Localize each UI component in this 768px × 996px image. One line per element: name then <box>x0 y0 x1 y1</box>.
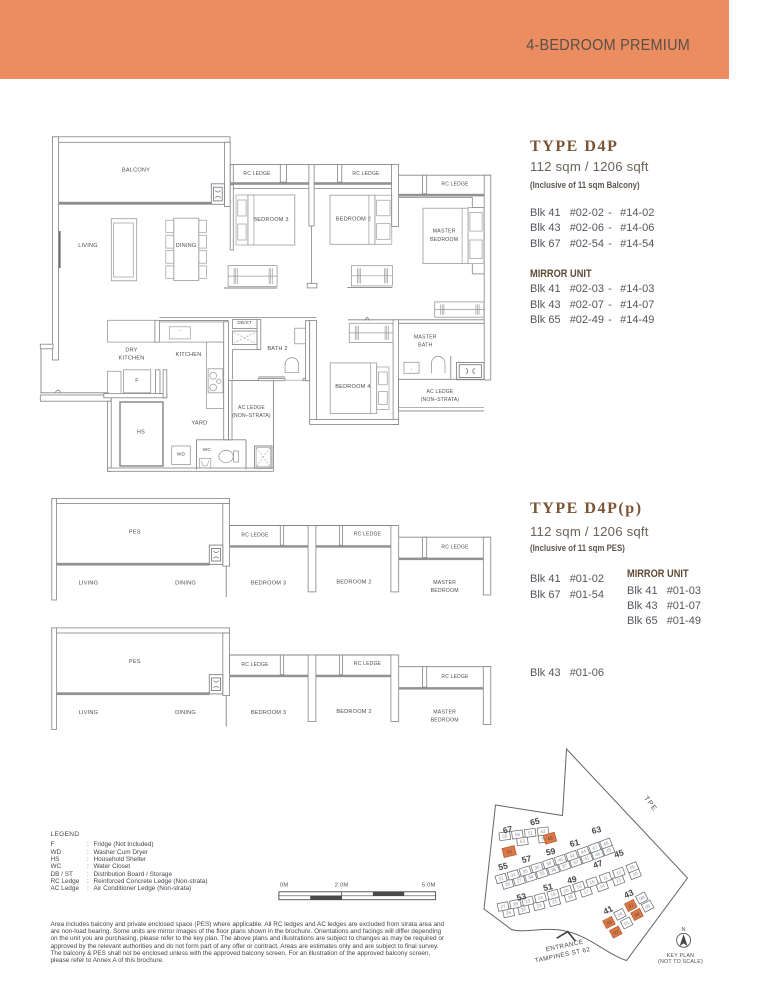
svg-text:LIVING: LIVING <box>78 243 98 249</box>
svg-text:RC LEDGE: RC LEDGE <box>441 182 469 188</box>
svg-text:KITCHEN: KITCHEN <box>176 352 202 358</box>
svg-text:TPE: TPE <box>642 795 658 813</box>
svg-text:RC LEDGE: RC LEDGE <box>441 545 469 551</box>
svg-text:DINING: DINING <box>175 710 196 716</box>
svg-text:F: F <box>135 378 139 384</box>
svg-text:BATH: BATH <box>418 343 432 349</box>
svg-text:RC LEDGE: RC LEDGE <box>241 533 269 539</box>
svg-text:LIVING: LIVING <box>79 581 99 587</box>
svg-text:65: 65 <box>529 816 541 828</box>
svg-text:(NON–STRATA): (NON–STRATA) <box>421 397 460 403</box>
svg-text:RC LEDGE: RC LEDGE <box>243 171 271 177</box>
svg-text:61: 61 <box>569 837 581 849</box>
svg-text:RC LEDGE: RC LEDGE <box>354 532 382 538</box>
svg-text:BEDROOM: BEDROOM <box>431 717 459 723</box>
svg-text:DINING: DINING <box>175 581 196 587</box>
svg-text:BEDROOM 3: BEDROOM 3 <box>253 217 288 223</box>
svg-text:DINING: DINING <box>176 243 197 249</box>
svg-text:YARD: YARD <box>191 421 207 427</box>
svg-text:63: 63 <box>591 824 603 836</box>
svg-text:PES: PES <box>129 659 141 665</box>
svg-text:BEDROOM: BEDROOM <box>431 588 459 594</box>
svg-text:45: 45 <box>613 847 626 860</box>
svg-text:WC: WC <box>203 447 212 453</box>
svg-text:AC LEDGE: AC LEDGE <box>238 405 265 411</box>
svg-text:57: 57 <box>521 853 533 865</box>
svg-text:RC LEDGE: RC LEDGE <box>352 171 380 177</box>
svg-text:MASTER: MASTER <box>433 229 456 235</box>
svg-text:BEDROOM 2: BEDROOM 2 <box>336 709 371 715</box>
svg-text:59: 59 <box>545 846 557 858</box>
svg-text:2.0M: 2.0M <box>335 883 349 889</box>
svg-text:41: 41 <box>602 903 615 916</box>
svg-text:BEDROOM: BEDROOM <box>430 237 458 243</box>
svg-text:43: 43 <box>622 887 635 900</box>
svg-text:5.0M: 5.0M <box>422 883 436 889</box>
svg-text:47: 47 <box>592 858 605 871</box>
svg-text:BATH 2: BATH 2 <box>267 346 287 352</box>
svg-text:LIVING: LIVING <box>79 710 99 716</box>
svg-text:(NON–STRATA): (NON–STRATA) <box>232 413 271 419</box>
svg-text:BEDROOM 2: BEDROOM 2 <box>336 217 371 223</box>
svg-text:PES: PES <box>129 530 141 536</box>
svg-text:BALCONY: BALCONY <box>122 168 150 174</box>
svg-text:MASTER: MASTER <box>433 580 456 586</box>
svg-text:(NOT TO SCALE): (NOT TO SCALE) <box>658 959 703 965</box>
svg-text:RC LEDGE: RC LEDGE <box>441 674 469 680</box>
svg-text:MASTER: MASTER <box>433 709 456 715</box>
svg-text:N: N <box>681 927 685 933</box>
svg-text:WD: WD <box>177 452 186 458</box>
svg-text:BEDROOM 3: BEDROOM 3 <box>251 581 286 587</box>
svg-text:0M: 0M <box>280 883 288 889</box>
svg-text:BEDROOM 4: BEDROOM 4 <box>335 384 370 390</box>
svg-text:BEDROOM 2: BEDROOM 2 <box>336 579 371 585</box>
svg-text:55: 55 <box>497 860 509 872</box>
svg-text:DRY: DRY <box>125 348 137 354</box>
svg-text:MASTER: MASTER <box>414 335 437 341</box>
svg-text:RC LEDGE: RC LEDGE <box>241 662 269 668</box>
svg-text:BEDROOM 3: BEDROOM 3 <box>251 710 286 716</box>
svg-text:HS: HS <box>137 430 145 436</box>
svg-text:DB/ST: DB/ST <box>237 320 252 325</box>
svg-text:KITCHEN: KITCHEN <box>119 356 145 362</box>
svg-text:RC LEDGE: RC LEDGE <box>354 661 382 667</box>
svg-text:53: 53 <box>516 891 528 903</box>
svg-text:AC LEDGE: AC LEDGE <box>427 389 454 395</box>
